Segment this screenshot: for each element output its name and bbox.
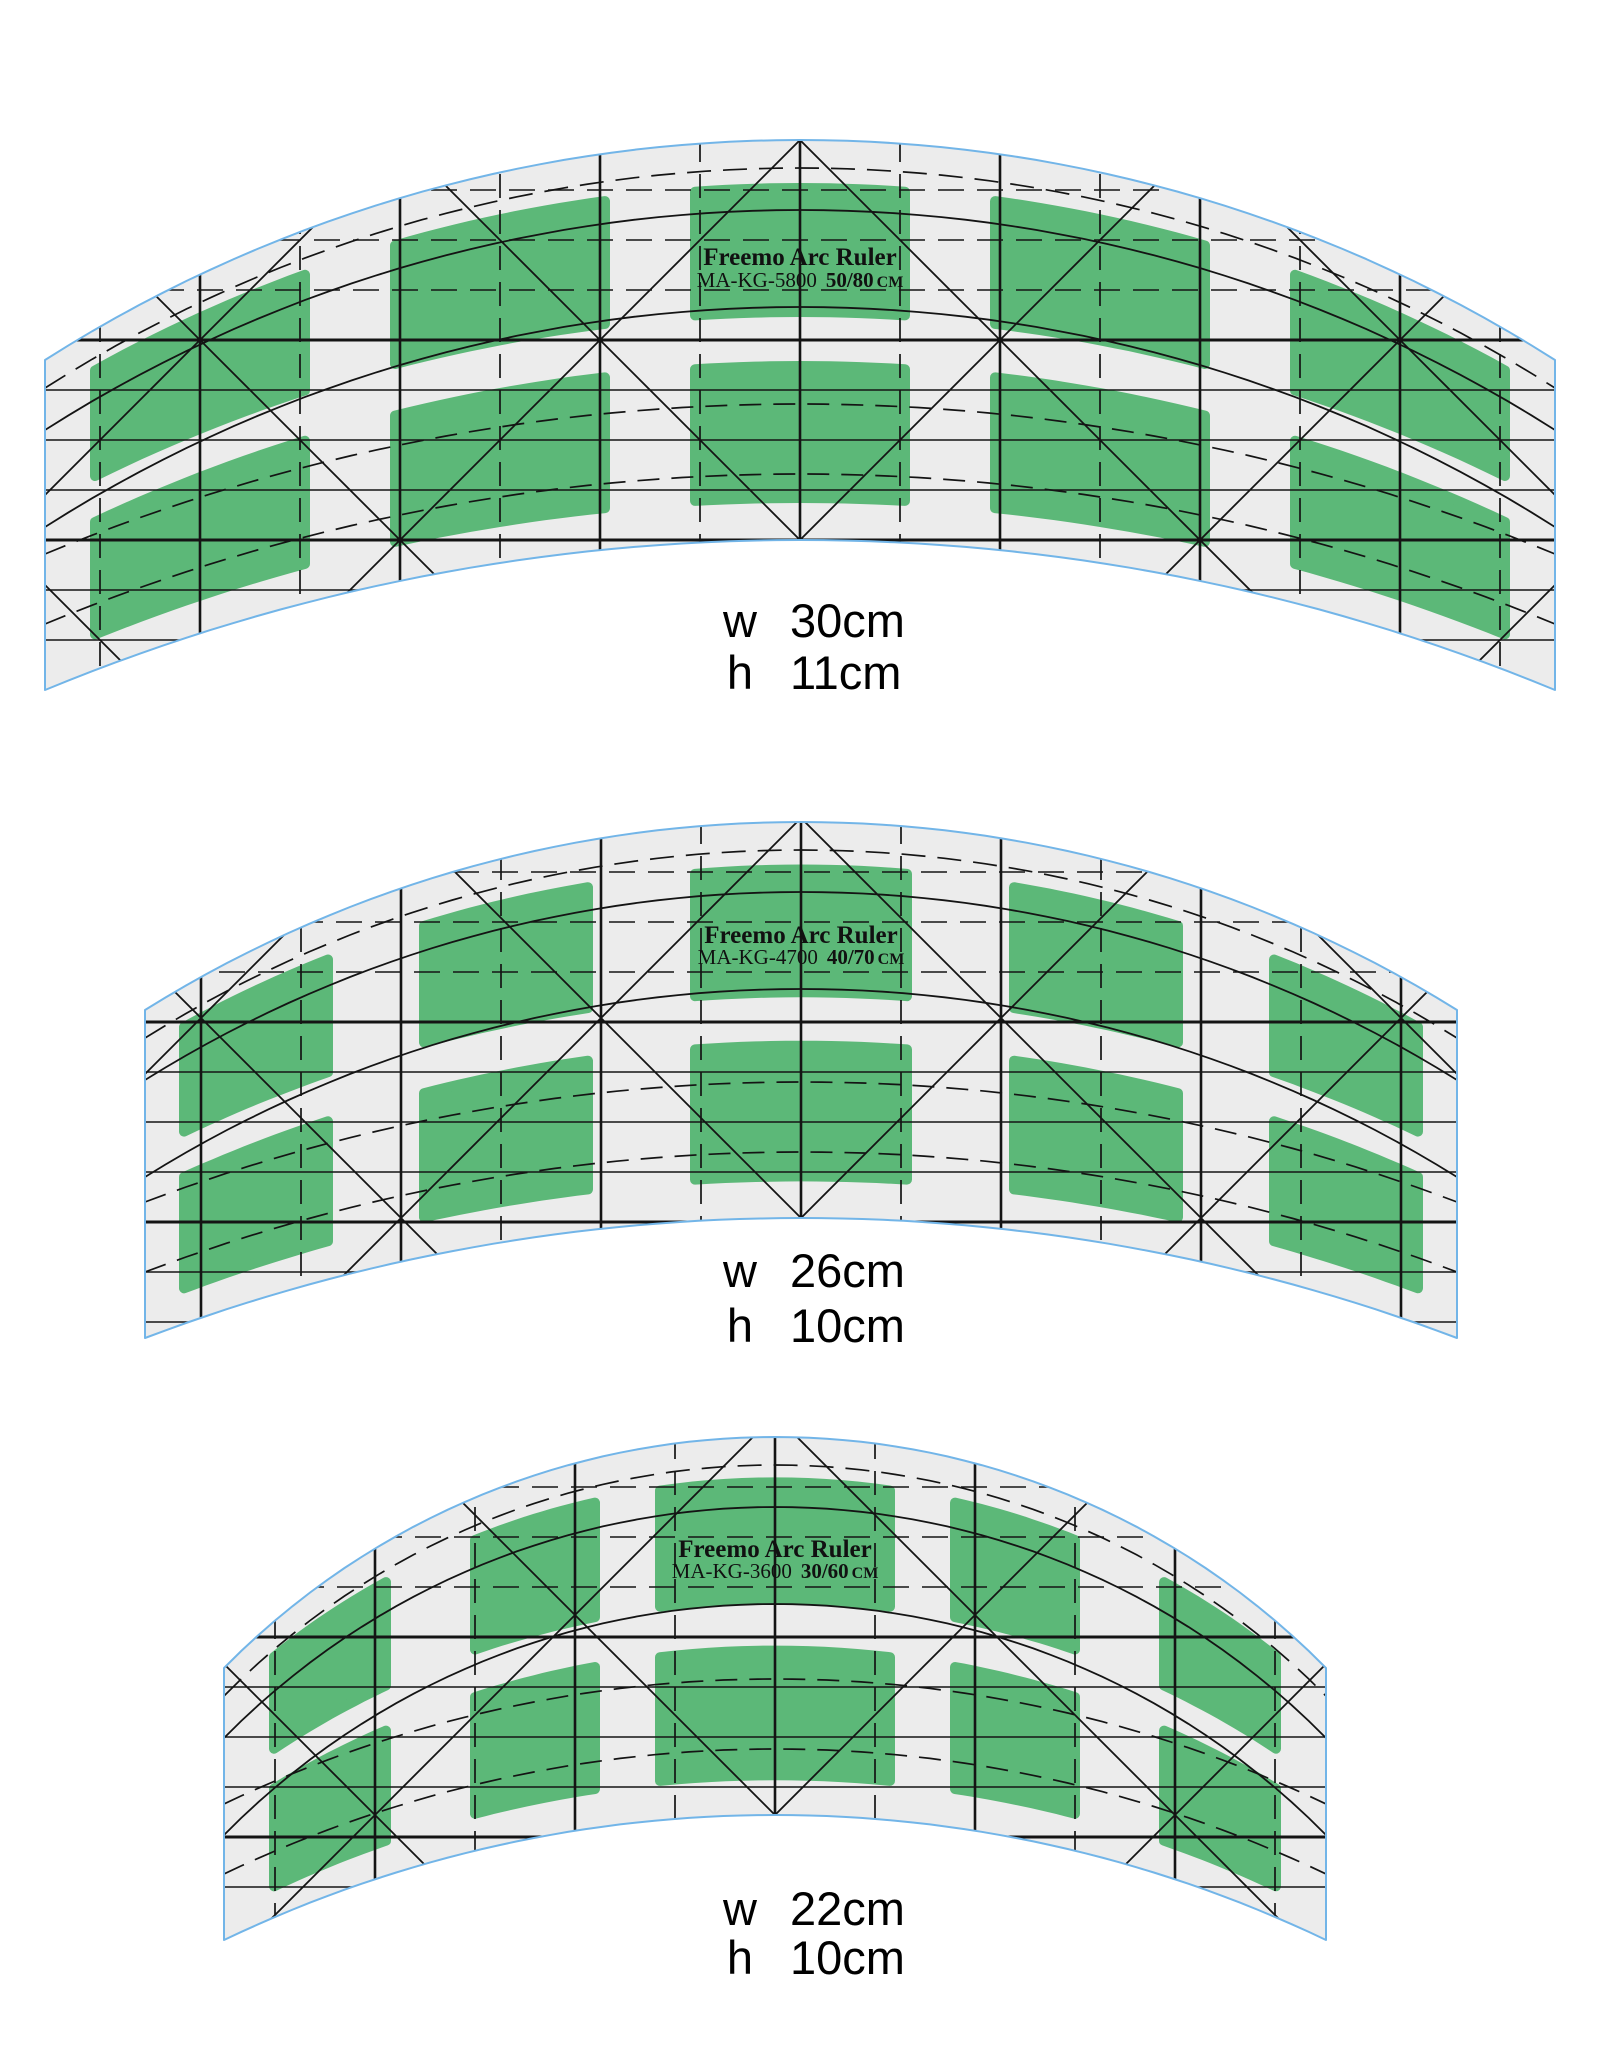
height-value: 10cm: [790, 1931, 905, 1984]
ruler-spec-sheet: Freemo Arc Ruler MA-KG-580050/80CM w 30c…: [0, 0, 1603, 2070]
ruler-model-line: MA-KG-470040/70CM: [698, 945, 905, 969]
arc-rulers-canvas: Freemo Arc Ruler MA-KG-580050/80CM w 30c…: [0, 0, 1603, 2070]
ruler-size-unit: CM: [877, 274, 904, 291]
height-key: h: [727, 1299, 753, 1352]
green-patch: [1014, 1061, 1178, 1218]
ruler-model: MA-KG-5800: [697, 268, 817, 292]
ruler-size-unit: CM: [852, 1565, 879, 1582]
ruler-size: 50/80: [826, 268, 874, 292]
height-key: h: [727, 646, 753, 699]
arc-ruler-3600: Freemo Arc Ruler MA-KG-360030/60CM w 22c…: [0, 1255, 1603, 2070]
green-patch: [475, 1667, 595, 1814]
ruler-model: MA-KG-4700: [698, 945, 818, 969]
ruler-model-line: MA-KG-580050/80CM: [697, 268, 904, 292]
height-key: h: [727, 1931, 753, 1984]
ruler-model-line: MA-KG-360030/60CM: [672, 1559, 879, 1583]
ruler-size-unit: CM: [878, 951, 905, 968]
height-value: 11cm: [790, 646, 901, 699]
ruler-size: 30/60: [801, 1559, 849, 1583]
width-key: w: [722, 1244, 758, 1297]
height-value: 10cm: [790, 1299, 905, 1352]
green-patch: [424, 1061, 588, 1218]
ruler-size: 40/70: [827, 945, 875, 969]
green-patch: [955, 1667, 1075, 1814]
width-key: w: [722, 594, 758, 647]
width-value: 22cm: [790, 1882, 905, 1935]
ruler-title: Freemo Arc Ruler: [703, 244, 896, 271]
width-value: 26cm: [790, 1244, 905, 1297]
width-key: w: [722, 1882, 758, 1935]
width-value: 30cm: [790, 594, 905, 647]
ruler-model: MA-KG-3600: [672, 1559, 792, 1583]
